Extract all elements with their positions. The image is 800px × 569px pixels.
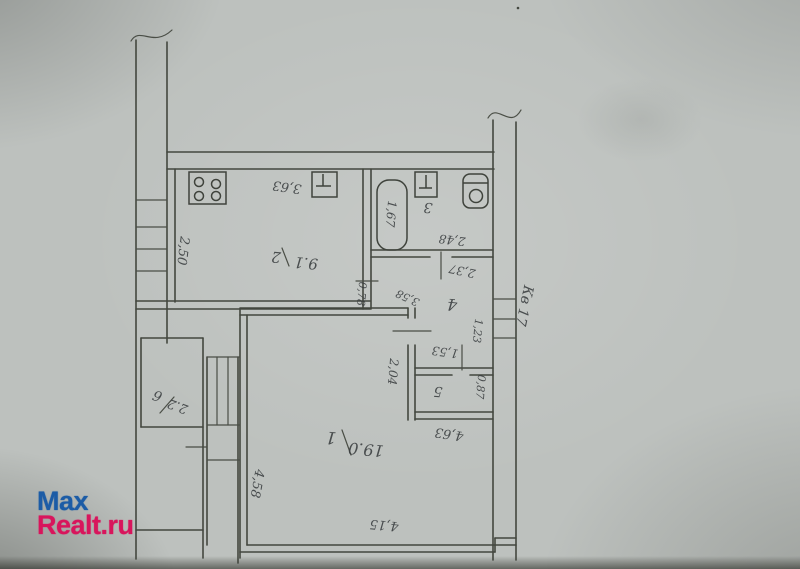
room6-area: 2.2 [166,395,192,417]
labels: 3,63 2 9.1 2,50 1,67 3 2,48 2,37 4 3,58 … [151,177,537,533]
dim-hall-length: 2,37 [447,261,477,281]
wall-break-mark [131,30,172,41]
dim-hall-diagonal: 3,58 [394,287,422,309]
room2-area: 9.1 [293,253,318,273]
window-balcony-door-block [186,357,240,563]
room1-number: 1 [325,427,338,448]
floorplan-photo: 3,63 2 9.1 2,50 1,67 3 2,48 2,37 4 3,58 … [0,0,800,569]
kitchen-sink-icon [312,172,337,197]
dim-room1-width: 4,15 [369,516,400,534]
dim-room1-inner-width: 4,63 [434,424,466,443]
washbasin-icon [415,172,437,197]
dim-room1-depth: 4,58 [247,467,267,499]
toilet-icon [463,174,488,208]
room4-number: 4 [446,295,459,315]
kitchen-walls [136,169,378,309]
hall-closet-walls [240,308,493,420]
dim-bath-width: 2,48 [438,231,468,248]
stove-icon [189,172,226,204]
room5-number: 5 [433,383,443,400]
ink-speck [517,7,520,10]
stove-burner [195,178,204,187]
room2-number: 2 [270,248,282,267]
floorplan-drawing: 3,63 2 9.1 2,50 1,67 3 2,48 2,37 4 3,58 … [0,0,800,569]
dim-bathtub-length: 1,67 [383,200,399,228]
stove-burner [195,192,204,201]
dim-closet-width: 1,53 [431,343,460,361]
stove-burner [212,192,221,201]
dim-closet-depth: 0,87 [473,374,488,400]
dim-hall-side: 1,23 [470,318,485,344]
dim-kitchen-depth: 2,50 [173,235,192,267]
room3-number: 3 [423,199,433,216]
stove-burner [212,180,221,189]
left-wall-column [131,30,172,559]
room1-area: 19.0 [347,438,384,460]
room2-fraction-bar [282,248,289,266]
stove-body [189,172,226,204]
dim-hall-opening: 0,78 [354,281,369,307]
maxrealt-watermark: Max Realt.ru [37,489,134,537]
dim-room1-side: 2,04 [385,357,401,386]
room6-number: 6 [151,386,165,404]
toilet-bowl [470,190,483,203]
wall-break-mark [488,110,521,118]
watermark-realt: Realt.ru [37,513,134,537]
top-exterior-wall [167,152,494,169]
dim-kitchen-width: 3,63 [272,177,303,196]
right-wall-column [488,110,521,560]
sink-body [312,172,337,197]
balcony-walls [136,338,203,558]
